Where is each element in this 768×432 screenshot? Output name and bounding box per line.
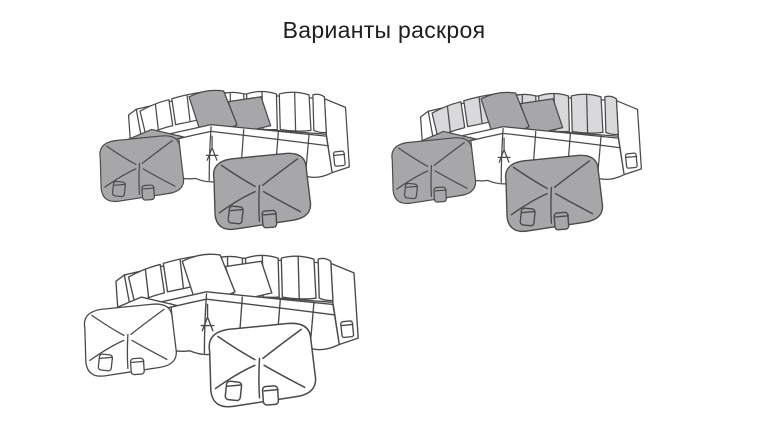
corner-sofa-with-ottomans [84, 254, 358, 407]
corner-sofa-with-ottomans [100, 90, 349, 229]
corner-sofa-with-ottomans [392, 92, 641, 231]
cutting-variant-3-illustration [78, 246, 394, 424]
cutting-variant-2-illustration [386, 82, 674, 250]
cutting-variant-1-illustration [94, 80, 382, 248]
slide-canvas: Варианты раскроя [0, 0, 768, 432]
page-title: Варианты раскроя [0, 17, 768, 44]
